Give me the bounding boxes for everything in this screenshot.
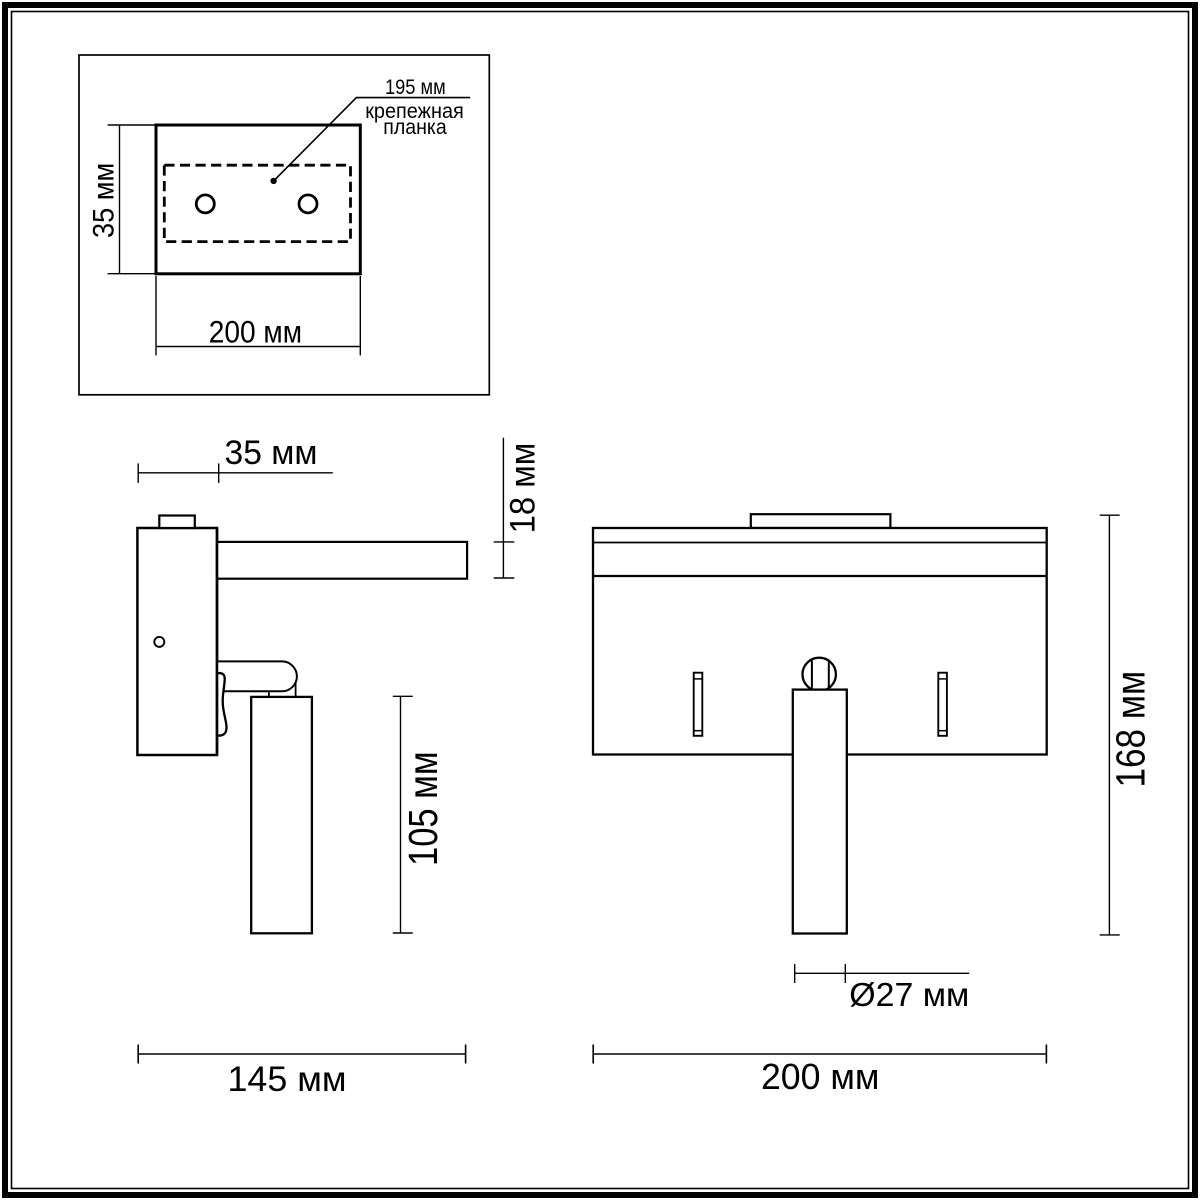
svg-text:200 мм: 200 мм	[209, 314, 302, 350]
svg-text:планка: планка	[383, 116, 447, 139]
svg-text:18 мм: 18 мм	[503, 443, 543, 534]
svg-text:105 мм: 105 мм	[400, 751, 446, 866]
svg-text:35 мм: 35 мм	[225, 434, 318, 472]
svg-text:Ø27 мм: Ø27 мм	[849, 976, 969, 1013]
svg-text:195 мм: 195 мм	[385, 76, 446, 99]
svg-text:145 мм: 145 мм	[228, 1059, 347, 1099]
svg-text:200 мм: 200 мм	[761, 1056, 880, 1097]
svg-text:35 мм: 35 мм	[88, 163, 121, 238]
svg-text:168 мм: 168 мм	[1108, 671, 1154, 788]
